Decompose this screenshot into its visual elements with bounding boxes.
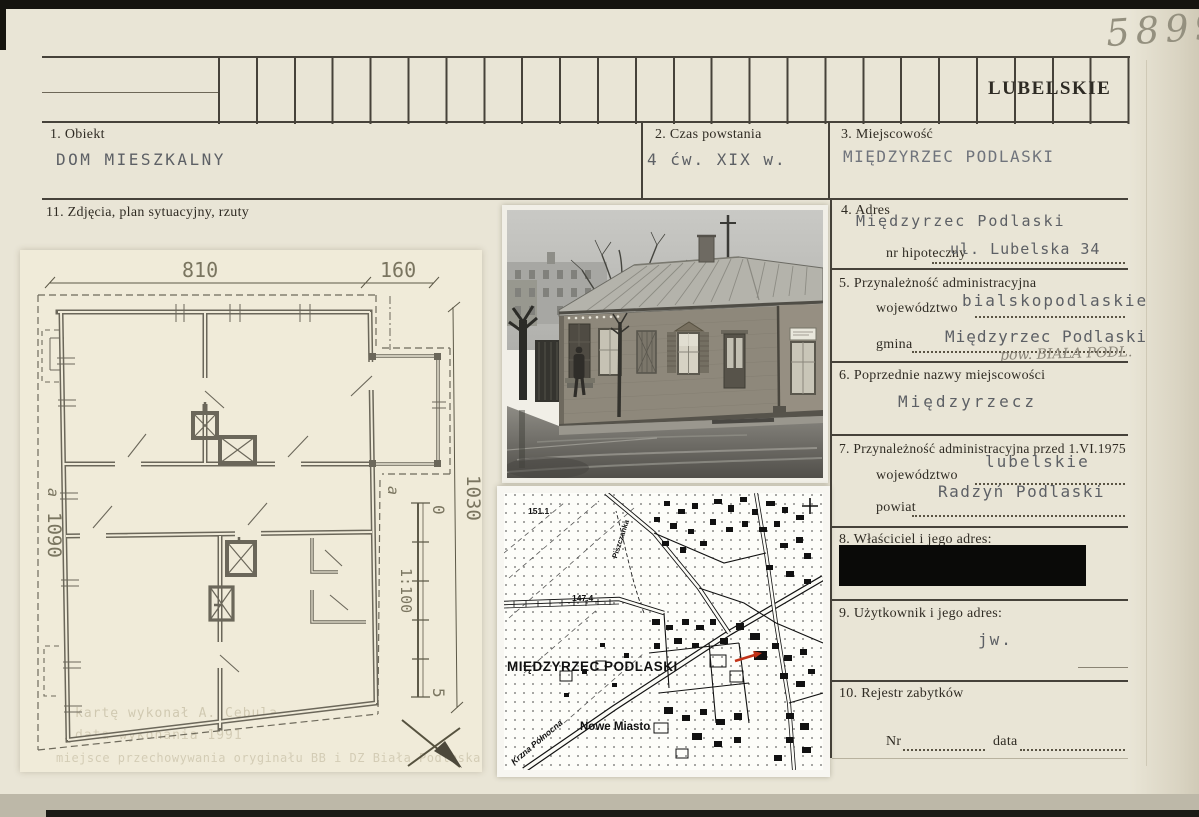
field3-value: MIĘDZYRZEC PODLASKI (843, 147, 1055, 166)
plan-window-ticks (57, 304, 446, 712)
field10-label: 10. Rejestr zabytków (839, 686, 964, 702)
field3-label: 3. Miejscowość (841, 127, 933, 143)
field5-label: 5. Przynależność administracyjna (839, 276, 1036, 292)
row1-bottom-line (42, 198, 1128, 200)
photo-house-image (507, 210, 823, 478)
separator-9-10 (832, 680, 1128, 682)
map-elevation-2: 147.4 (572, 593, 594, 603)
row1-divider-1 (641, 121, 643, 199)
field7-wojewodztwo-value: lubelskie (985, 452, 1090, 471)
separator-7-8 (832, 526, 1128, 528)
field1-label: 1. Obiekt (50, 127, 105, 143)
field5-wojewodztwo-value: bialskopodlaskie (962, 291, 1148, 310)
header-rule-2 (42, 92, 218, 93)
field4-value: Międzyrzec Podlaski (856, 212, 1066, 230)
field2-label: 2. Czas powstania (655, 127, 762, 143)
redaction-bar (839, 545, 1086, 586)
row1-divider-2 (828, 121, 830, 199)
inventory-number-handwritten: 5899 (1105, 4, 1199, 55)
field6-value: Międzyrzecz (898, 392, 1037, 411)
right-column-divider (830, 198, 832, 758)
dim-810: 810 (182, 258, 218, 282)
scale-ratio: 1:100 (397, 568, 415, 613)
plan-door-swings (93, 376, 372, 672)
map-title: MIĘDZYRZEC PODLASKI (507, 659, 678, 674)
field2-value: 4 ćw. XIX w. (647, 150, 787, 169)
dim-1090: 1090 (43, 512, 65, 558)
card-bottom-edge (832, 758, 1128, 759)
section-a-left: a (44, 488, 62, 497)
plan-scale-texts: 0 5 1:100 (397, 505, 448, 698)
field5-dotted-1 (975, 316, 1125, 318)
map-image: 151.1 147.4 Piszczanka MIĘDZYRZEC PODLAS… (504, 493, 823, 770)
fence (535, 340, 561, 402)
field1-value: DOM MIESZKALNY (56, 150, 226, 169)
separator-6-7 (832, 434, 1128, 436)
field6-label: 6. Poprzednie nazwy miejscowości (839, 368, 1045, 384)
field5-wojewodztwo-label: województwo (876, 301, 958, 317)
row1-top-line (42, 121, 1128, 123)
field9-value: jw. (978, 630, 1013, 649)
field4-sub-value: ul. Lubelska 34 (950, 240, 1100, 258)
scale-0: 0 (429, 505, 448, 515)
field5-gmina-label: gmina (876, 337, 913, 353)
scan-edge-bottom-line (46, 810, 1199, 817)
scan-edge-top (0, 0, 1199, 9)
field10-nr-line (903, 749, 985, 751)
floor-plan-sheet: kartę wykonał A. Cebula data wykonania 1… (20, 250, 482, 772)
scan-edge-left (0, 0, 6, 50)
photo-house (502, 205, 828, 483)
scale-5: 5 (429, 688, 448, 698)
separator-8-9 (832, 599, 1128, 601)
plan-dimension-texts: 810 160 1030 a 1090 a (43, 258, 482, 558)
separator-5-6 (832, 361, 1128, 363)
ghost-note-3: miejsce przechowywania oryginału BB i DZ… (56, 751, 481, 765)
dim-160: 160 (380, 258, 416, 282)
map-district-label: Nowe Miasto (580, 721, 650, 733)
map-elevation-1: 151.1 (528, 506, 550, 516)
plan-stoves (193, 402, 255, 620)
page-edge-line (1146, 60, 1147, 766)
stray-mark (1078, 667, 1128, 668)
field11-label: 11. Zdjęcia, plan sytuacyjny, rzuty (46, 205, 249, 221)
field10-data-label: data (993, 734, 1018, 750)
field9-label: 9. Użytkownik i jego adres: (839, 606, 1002, 622)
heritage-record-card: 5899 LUBELSKIE 1. Obiekt DOM MIESZKALNY … (0, 0, 1199, 817)
header-rule-1 (42, 56, 218, 58)
field4-dotted-line (932, 262, 1125, 264)
dim-1030: 1030 (462, 475, 482, 521)
plan-dashed-outline (38, 295, 450, 750)
field5-gmina-value: Międzyrzec Podlaski (945, 327, 1147, 346)
field10-nr-label: Nr (886, 734, 901, 750)
page-curl-shade (1129, 9, 1199, 794)
floor-plan-drawing: kartę wykonał A. Cebula data wykonania 1… (20, 250, 482, 772)
field7-powiat-label: powiat (876, 500, 916, 516)
voivodeship-stamp: LUBELSKIE (988, 78, 1111, 100)
separator-4-5 (832, 268, 1128, 270)
map-sheet: 151.1 147.4 Piszczanka MIĘDZYRZEC PODLAS… (497, 486, 830, 777)
section-a-right: a (384, 486, 402, 495)
field7-powiat-value: Radzyń Podlaski (938, 482, 1105, 501)
field10-data-line (1020, 749, 1125, 751)
field7-dotted-2 (912, 515, 1125, 517)
